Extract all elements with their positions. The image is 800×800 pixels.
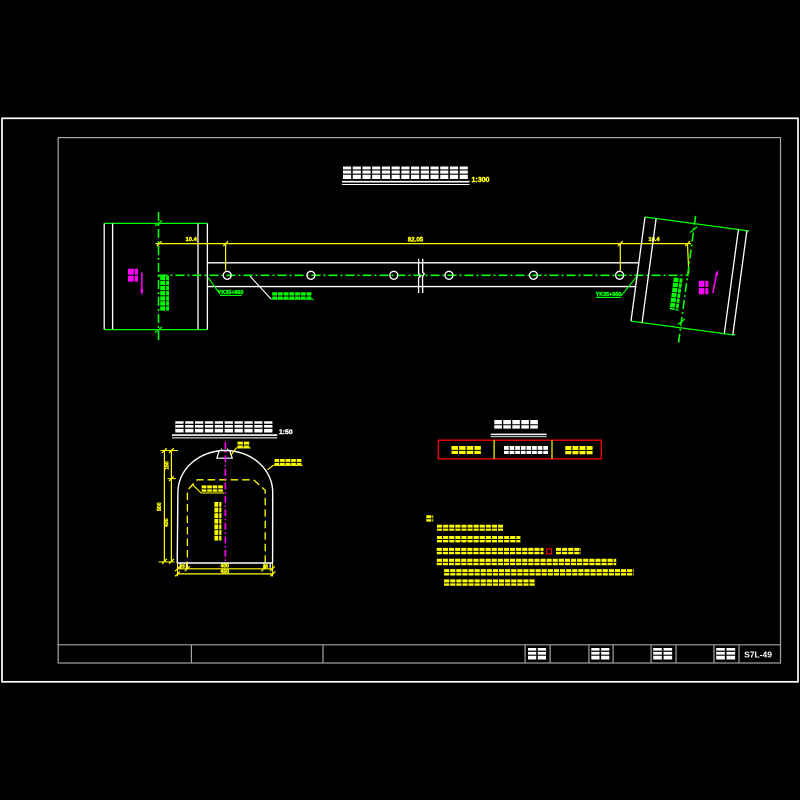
svg-text:82.05: 82.05 bbox=[408, 237, 424, 244]
svg-text:450: 450 bbox=[220, 569, 229, 575]
svg-text:430: 430 bbox=[164, 518, 170, 527]
svg-text:500: 500 bbox=[157, 502, 163, 511]
svg-text:1:300: 1:300 bbox=[472, 177, 490, 184]
svg-text:1:50: 1:50 bbox=[279, 429, 293, 436]
svg-text:25: 25 bbox=[263, 564, 269, 570]
svg-text:25: 25 bbox=[180, 564, 186, 570]
svg-text:10.4: 10.4 bbox=[186, 237, 198, 243]
svg-text:S7L-49: S7L-49 bbox=[744, 650, 772, 660]
svg-text:10.4: 10.4 bbox=[648, 237, 660, 243]
svg-text:150: 150 bbox=[165, 461, 171, 470]
